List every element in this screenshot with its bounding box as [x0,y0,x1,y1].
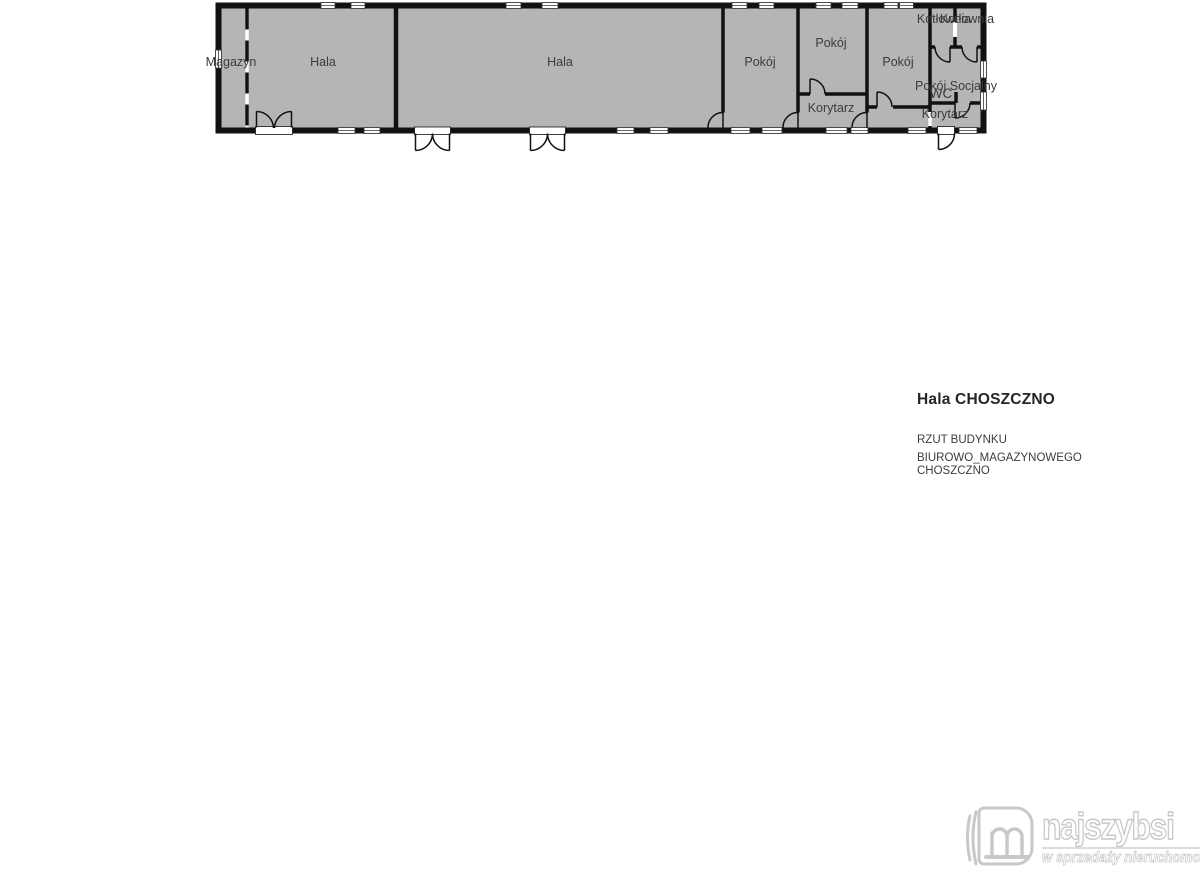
room-label-hala-2: Hala [547,55,573,69]
title-block: Hala CHOSZCZNO RZUT BUDYNKU BIUROWO_MAGA… [917,391,1187,479]
page: { "floor_plan": { "rooms": [ {"label": "… [0,0,1200,878]
brand-watermark: najszybsi w sprzedaży nieruchomości [962,802,1194,872]
room-label-pokoj-1: Pokój [744,55,775,69]
room-label-magazyn: Magazyn [206,55,257,69]
plan-subtitle-line-3: CHOSZCZNO [917,465,1187,479]
room-label-wc: WC [930,86,953,101]
room-label-pokoj-3: Pokój [882,55,913,69]
room-label-pokoj-socjalny: Pokój Socjalny [915,79,998,93]
brand-tagline: w sprzedaży nieruchomości [1042,847,1200,866]
room-label-korytarz-2: Korytarz [922,107,969,121]
room-label-korytarz-1: Korytarz [808,101,855,115]
plan-subtitle-line-2: BIUROWO_MAGAZYNOWEGO [917,452,1187,466]
plan-subtitle-line-1: RZUT BUDYNKU [917,434,1187,448]
floor-plan: Magazyn Hala Hala Pokój Pokój Korytarz P… [200,0,1000,170]
brand-name: najszybsi [1042,808,1200,846]
plan-title: Hala CHOSZCZNO [917,391,1187,409]
room-label-hala-1: Hala [310,55,336,69]
brand-text-block: najszybsi w sprzedaży nieruchomości [1042,808,1200,866]
brand-book-icon [962,803,1038,871]
room-label-kotlownia-2: Kotłownia [940,12,994,26]
room-label-pokoj-2: Pokój [815,36,846,50]
